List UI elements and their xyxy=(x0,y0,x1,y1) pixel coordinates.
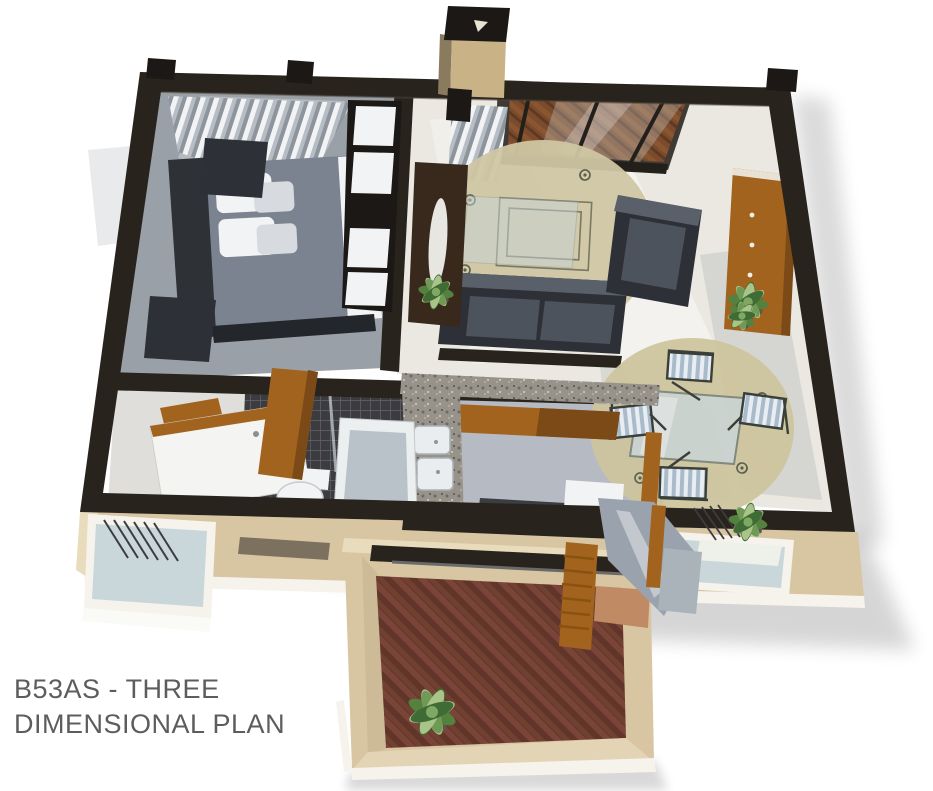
wall-stub xyxy=(766,68,798,92)
screenshot-canvas: B53AS - THREE DIMENSIONAL PLAN xyxy=(0,0,933,791)
bedroom-bench xyxy=(144,296,216,362)
walkway-glass-panel xyxy=(658,548,702,614)
sofa xyxy=(438,272,628,354)
bedroom-bench xyxy=(200,138,268,198)
bottom-left-window xyxy=(82,514,216,632)
kitchen-sink xyxy=(414,426,453,490)
living-room xyxy=(408,140,798,354)
wall-stub xyxy=(146,58,176,80)
bedroom-closet xyxy=(342,100,402,312)
coffee-table xyxy=(462,196,578,268)
patio xyxy=(336,538,656,780)
plan-caption-line1: B53AS - THREE xyxy=(14,672,285,707)
plan-caption: B53AS - THREE DIMENSIONAL PLAN xyxy=(14,672,285,742)
armchair xyxy=(606,195,702,307)
wall-stub xyxy=(286,60,314,84)
bedroom xyxy=(144,96,402,362)
plan-caption-line2: DIMENSIONAL PLAN xyxy=(14,707,285,742)
